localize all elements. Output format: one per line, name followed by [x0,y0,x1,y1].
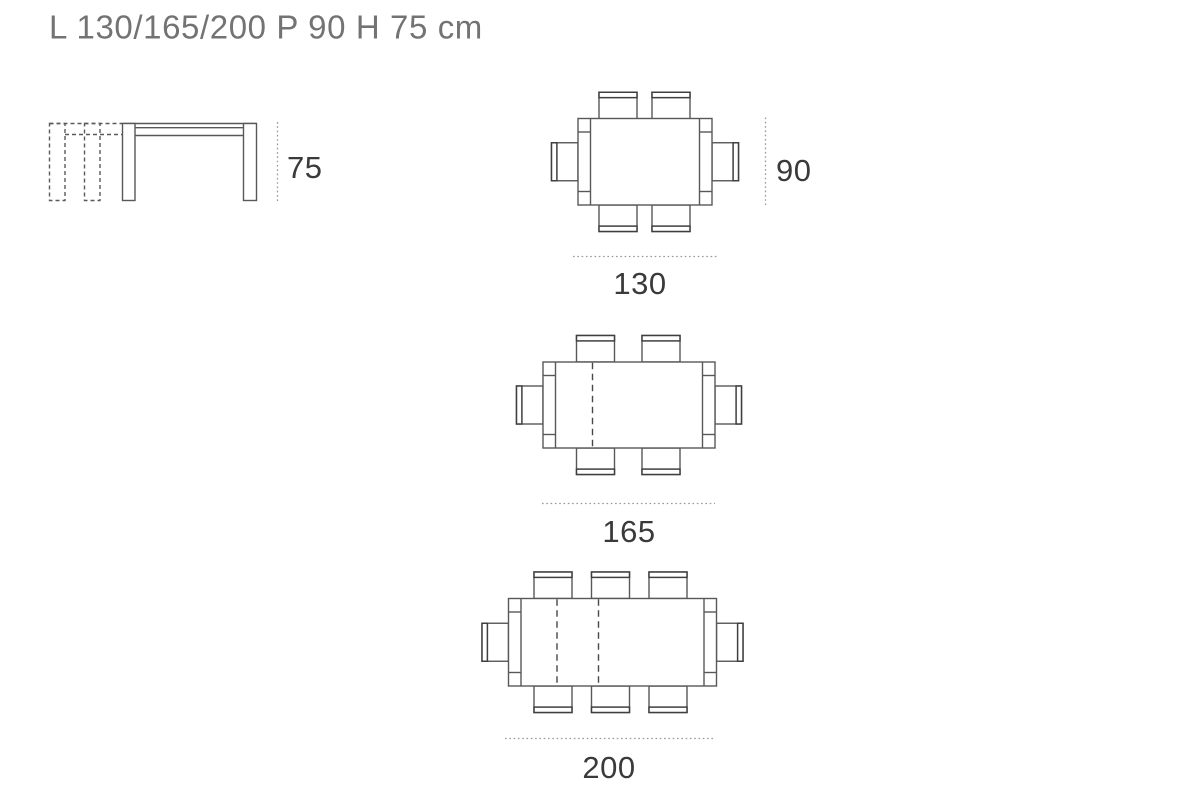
chair [715,386,742,424]
chair [592,572,630,599]
chair [599,205,637,232]
chair [652,92,690,119]
depth-label: 90 [776,153,811,188]
chair [599,92,637,119]
chair [717,623,744,661]
table-leg [244,124,257,201]
page-title: L 130/165/200 P 90 H 75 cm [49,9,483,46]
chair [517,386,544,424]
chair [482,623,509,661]
chair [712,143,739,181]
chair [652,205,690,232]
table-leg [123,124,136,201]
length-label-130: 130 [613,266,666,301]
chair [592,686,630,713]
top-view-200: 200 [482,572,743,785]
chair [552,143,579,181]
length-label-200: 200 [582,750,635,785]
chair [577,336,615,363]
side-elevation-figure: 75 [50,122,323,201]
height-label: 75 [287,150,322,185]
chair [577,448,615,475]
table-outline [578,119,712,206]
length-label-165: 165 [602,514,655,549]
chair [534,572,572,599]
chair [649,686,687,713]
chair [649,572,687,599]
table-outline [543,362,715,448]
top-view-165: 165 [517,336,742,550]
top-view-130: 90 130 [552,92,812,301]
chair [642,336,680,363]
chair [534,686,572,713]
table-outline [509,599,717,687]
dimension-diagram-page: L 130/165/200 P 90 H 75 cm 75 [0,0,1200,801]
dashed-extension-leaf [50,124,66,201]
diagram-canvas: L 130/165/200 P 90 H 75 cm 75 [0,0,1200,801]
chair [642,448,680,475]
